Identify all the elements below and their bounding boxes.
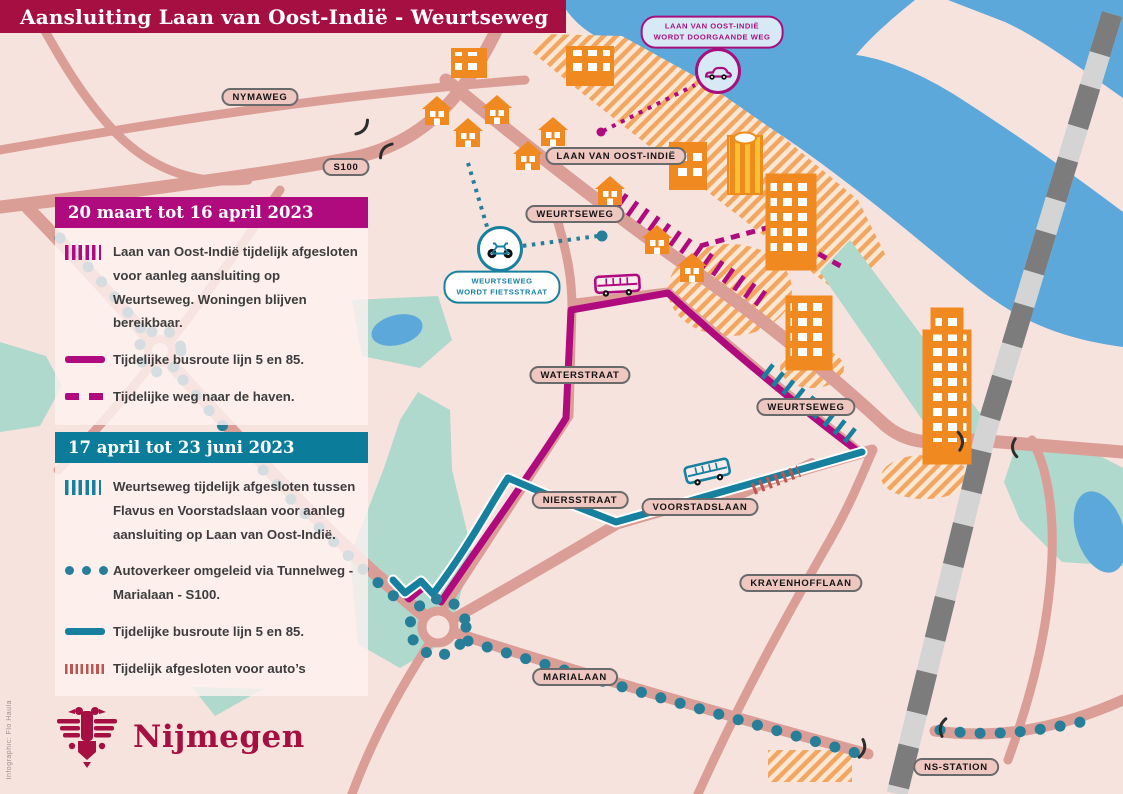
- road-label-niersstraat: NIERSSTRAAT: [532, 491, 629, 509]
- bicycle-icon: [477, 226, 523, 272]
- legend2-item-cars-closed: Tijdelijk afgesloten voor auto’s: [65, 657, 358, 681]
- legend2-item-detour: Autoverkeer omgeleid via Tunnelweg - Mar…: [65, 559, 358, 607]
- nijmegen-logo: Nijmegen: [55, 703, 305, 771]
- road-label-krayenhofflaan: KRAYENHOFFLAAN: [739, 574, 862, 592]
- teal-dots-icon: [65, 566, 108, 575]
- nijmegen-eagle-icon: [55, 703, 119, 771]
- road-label-s100: S100: [323, 158, 370, 176]
- legend2-header: 17 april tot 23 juni 2023: [55, 432, 368, 463]
- logo-wordmark: Nijmegen: [133, 719, 305, 755]
- legend1-item-busroute: Tijdelijke busroute lijn 5 en 85.: [65, 348, 358, 372]
- legend1-item-closed: Laan van Oost-Indië tijdelijk afgesloten…: [65, 240, 358, 335]
- road-label-weurtseweg-zuid: WEURTSEWEG: [756, 398, 855, 416]
- page-title: Aansluiting Laan van Oost-Indië - Weurts…: [20, 5, 548, 29]
- silo-building: [728, 133, 762, 195]
- road-label-waterstraat: WATERSTRAAT: [529, 366, 630, 384]
- teal-closed-hatch-icon: [65, 480, 101, 495]
- callout-doorgaande-weg: LAAN VAN OOST-INDIË WORDT DOORGAANDE WEG: [641, 16, 784, 49]
- legend2-item-closed: Weurtseweg tijdelijk afgesloten tussen F…: [65, 475, 358, 546]
- callout-fietsstraat: WEURTSEWEG WORDT FIETSSTRAAT: [443, 271, 560, 304]
- teal-bus-line-icon: [65, 628, 105, 635]
- road-label-nymaweg: NYMAWEG: [221, 88, 298, 106]
- credit-text: Infographic: Flo Haula: [6, 700, 13, 779]
- legend1-header: 20 maart tot 16 april 2023: [55, 197, 368, 228]
- legend1-item-harbour: Tijdelijke weg naar de haven.: [65, 385, 358, 409]
- red-car-hatch-icon: [65, 664, 105, 674]
- road-label-laan-van-oost-indie: LAAN VAN OOST-INDIË: [545, 147, 686, 165]
- car-icon: [695, 48, 741, 94]
- magenta-dashed-line-icon: [65, 393, 107, 400]
- magenta-closed-hatch-icon: [65, 245, 101, 260]
- road-label-ns-station: NS-STATION: [913, 758, 999, 776]
- legend-period-2: 17 april tot 23 juni 2023 Weurtseweg tij…: [55, 432, 368, 696]
- infographic-canvas: Aansluiting Laan van Oost-Indië - Weurts…: [0, 0, 1123, 794]
- legend-period-1: 20 maart tot 16 april 2023 Laan van Oost…: [55, 197, 368, 425]
- legend2-item-busroute: Tijdelijke busroute lijn 5 en 85.: [65, 620, 358, 644]
- magenta-bus-line-icon: [65, 356, 105, 363]
- title-bar: Aansluiting Laan van Oost-Indië - Weurts…: [0, 0, 566, 33]
- road-label-weurtseweg-noord: WEURTSEWEG: [525, 205, 624, 223]
- road-label-marialaan: MARIALAAN: [532, 668, 618, 686]
- road-label-voorstadslaan: VOORSTADSLAAN: [642, 498, 759, 516]
